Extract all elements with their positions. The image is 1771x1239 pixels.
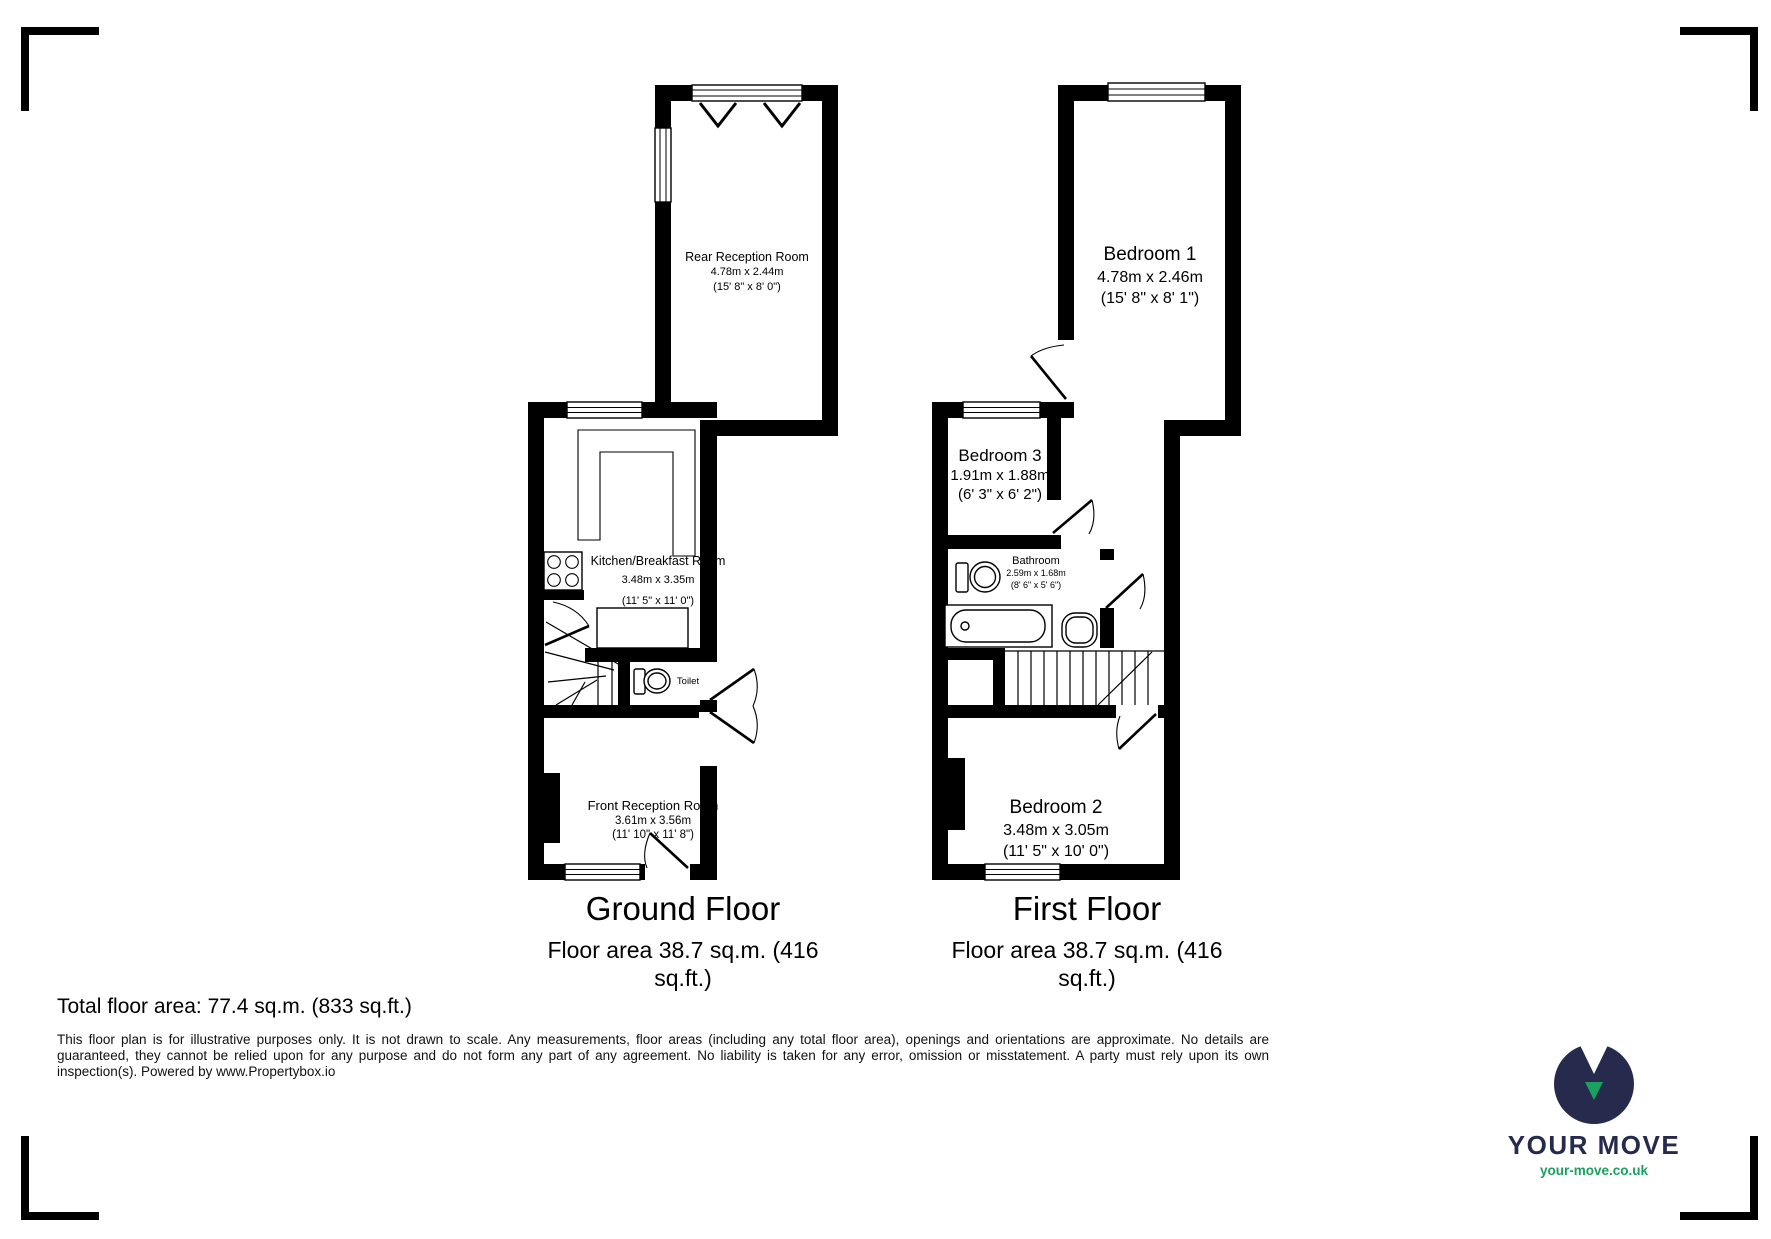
room-dim-imperial: (8' 6" x 5' 6") <box>1001 580 1071 592</box>
room-label-bedroom2: Bedroom 2 3.48m x 3.05m (11' 5" x 10' 0"… <box>974 796 1138 862</box>
corner-mark-top-left <box>21 27 99 111</box>
your-move-logo: YOUR MOVE your-move.co.uk <box>1500 1043 1688 1178</box>
corner-mark-bottom-right <box>1680 1136 1758 1220</box>
room-dim-metric: 3.48m x 3.35m <box>556 570 760 591</box>
first-floor-area-line2: sq.ft.) <box>887 964 1287 992</box>
room-dim-imperial: (15' 8" x 8' 1") <box>1072 288 1228 309</box>
ground-floor-area-line2: sq.ft.) <box>483 964 883 992</box>
room-dim-metric: 4.78m x 2.46m <box>1072 267 1228 288</box>
toilet-icon <box>956 562 1000 592</box>
room-label-kitchen: Kitchen/Breakfast Room 3.48m x 3.35m (11… <box>556 552 760 612</box>
room-dim-metric: 3.61m x 3.56m <box>553 814 753 828</box>
ground-floor-area: Floor area 38.7 sq.m. (416 sq.ft.) <box>483 936 883 992</box>
room-dim-metric: 1.91m x 1.88m <box>933 466 1067 485</box>
room-dim-metric: 3.48m x 3.05m <box>974 820 1138 841</box>
room-label-front-reception: Front Reception Room 3.61m x 3.56m (11' … <box>553 798 753 842</box>
room-label-bedroom1: Bedroom 1 4.78m x 2.46m (15' 8" x 8' 1") <box>1072 243 1228 309</box>
first-floor-area: Floor area 38.7 sq.m. (416 sq.ft.) <box>887 936 1287 992</box>
your-move-logo-icon <box>1554 1043 1634 1125</box>
stairs-icon <box>1005 651 1164 705</box>
room-label-toilet: Toilet <box>666 676 710 687</box>
room-dim-imperial: (11' 10" x 11' 8") <box>553 828 753 842</box>
room-name: Bedroom 1 <box>1072 243 1228 267</box>
room-dim-metric: 4.78m x 2.44m <box>655 265 839 280</box>
disclaimer-text: This floor plan is for illustrative purp… <box>57 1032 1269 1079</box>
ground-walls <box>528 85 838 881</box>
room-label-bedroom3: Bedroom 3 1.91m x 1.88m (6' 3" x 6' 2") <box>933 445 1067 504</box>
total-floor-area: Total floor area: 77.4 sq.m. (833 sq.ft.… <box>57 995 412 1019</box>
ground-floor-area-line1: Floor area 38.7 sq.m. (416 <box>483 936 883 964</box>
room-label-rear-reception: Rear Reception Room 4.78m x 2.44m (15' 8… <box>655 250 839 295</box>
room-name: Rear Reception Room <box>655 250 839 265</box>
kitchen-counter-icon <box>578 430 695 648</box>
room-name: Bedroom 2 <box>974 796 1138 820</box>
chevron-icon <box>700 103 800 126</box>
first-floor-title: First Floor <box>887 890 1287 928</box>
room-dim-imperial: (15' 8" x 8' 0") <box>655 280 839 295</box>
bath-icon <box>945 605 1052 647</box>
floorplan-page: Rear Reception Room 4.78m x 2.44m (15' 8… <box>0 0 1771 1239</box>
room-name: Front Reception Room <box>553 798 753 814</box>
corner-mark-bottom-left <box>21 1136 99 1220</box>
room-name: Bathroom <box>1001 555 1071 568</box>
first-floor-area-line1: Floor area 38.7 sq.m. (416 <box>887 936 1287 964</box>
room-name: Bedroom 3 <box>933 445 1067 466</box>
room-dim-imperial: (11' 5" x 11' 0") <box>556 591 760 612</box>
corner-mark-top-right <box>1680 27 1758 111</box>
your-move-brand-text: YOUR MOVE <box>1500 1130 1688 1161</box>
sink-icon <box>1062 613 1097 647</box>
room-name: Kitchen/Breakfast Room <box>556 552 760 570</box>
toilet-icon <box>634 669 670 694</box>
room-label-bathroom: Bathroom 2.59m x 1.68m (8' 6" x 5' 6") <box>1001 555 1071 591</box>
your-move-url-text: your-move.co.uk <box>1500 1163 1688 1178</box>
room-dim-imperial: (6' 3" x 6' 2") <box>933 485 1067 504</box>
room-dim-imperial: (11' 5" x 10' 0") <box>974 841 1138 862</box>
ground-floor-title: Ground Floor <box>483 890 883 928</box>
room-dim-metric: 2.59m x 1.68m <box>1001 568 1071 580</box>
ground-floor-plan <box>528 85 838 881</box>
